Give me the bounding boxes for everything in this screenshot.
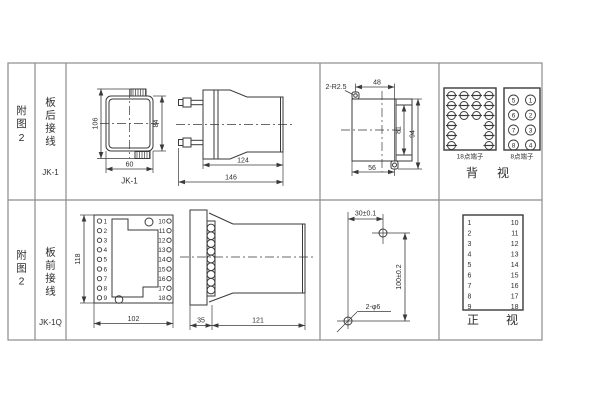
fig-char: 附 <box>16 249 27 262</box>
terminal-hole <box>167 267 171 271</box>
plate-terminal <box>207 247 215 255</box>
wiring-char: 后 <box>45 110 56 122</box>
terminal-number: 8 <box>468 294 472 301</box>
terminal-number: 14 <box>511 262 519 269</box>
terminal-number: 15 <box>511 273 519 280</box>
screw-tip <box>179 140 184 146</box>
terminal-hole <box>97 296 101 300</box>
screw-tip <box>179 100 184 106</box>
dim-118: 118 <box>75 253 82 264</box>
row1-fig-label: 附 图 2 <box>16 104 27 144</box>
front-view-caption-char: 视 <box>506 312 518 327</box>
terminal-number: 17 <box>511 294 519 301</box>
terminal-number: 16 <box>511 283 519 290</box>
terminal-hole <box>97 286 101 290</box>
terminal-hole <box>167 257 171 261</box>
model-label: JK-1Q <box>39 318 62 327</box>
screw-nut <box>183 98 191 107</box>
dim-60: 60 <box>126 162 134 169</box>
plate-terminal-circles <box>207 224 215 294</box>
jk1q-drill-plan: 30±0.1 100±0.2 2-φ6 <box>337 211 410 333</box>
mount-hole-top <box>145 218 153 226</box>
terminal-number: 7 <box>104 276 108 283</box>
terminal8-numbers: 56781234 <box>509 95 536 150</box>
terminal-hole <box>167 228 171 232</box>
terminal-number: 18 <box>158 295 166 302</box>
plate-terminal <box>207 286 215 294</box>
screw-nut <box>183 138 191 147</box>
terminal-hole <box>167 296 171 300</box>
terminal-number: 2 <box>529 112 533 119</box>
terminal-hole <box>97 257 101 261</box>
front-tab-top-hatch <box>131 89 146 96</box>
terminal-hole <box>97 276 101 280</box>
terminal-screw-bottom <box>179 138 204 147</box>
corner-note: 2-R2.5 <box>325 84 346 91</box>
wiring-char: 前 <box>45 259 56 272</box>
terminal-number: 6 <box>468 273 472 280</box>
fig-char: 图 <box>16 118 27 130</box>
wiring-char: 板 <box>45 246 56 259</box>
row2-fig-label: 附 图 2 <box>16 249 27 288</box>
dim-121: 121 <box>252 318 264 325</box>
jk1-back-view: 56781234 18点端子 8点端子 背 视 <box>444 88 540 180</box>
terminal-hole <box>167 238 171 242</box>
terminal-number: 10 <box>158 218 166 225</box>
front-view-numbers-left: 123456789 <box>468 220 472 311</box>
terminal-number: 1 <box>468 220 472 227</box>
front-plate <box>190 210 207 305</box>
plate-terminal <box>207 255 215 263</box>
fig-char: 图 <box>16 263 27 275</box>
terminal-number: 16 <box>158 276 166 283</box>
plate-terminal <box>207 271 215 279</box>
jk1q-side-view: 35 121 <box>180 210 315 330</box>
jk1-front-view: 106 84 60 JK-1 <box>93 89 167 186</box>
terminal-hole <box>97 267 101 271</box>
terminal-number: 11 <box>159 228 166 235</box>
drawing-sheet: 附 图 2 板 后 接 线 JK-1 106 84 60 JK-1 <box>0 0 600 400</box>
terminal-number: 7 <box>468 283 472 290</box>
front-view-caption: JK-1 <box>121 177 138 186</box>
taper-top <box>209 213 233 224</box>
drawing-svg: 附 图 2 板 后 接 线 JK-1 106 84 60 JK-1 <box>0 0 600 400</box>
back-view-caption-char: 视 <box>497 165 509 180</box>
terminal-number: 5 <box>104 257 108 264</box>
terminal18-screws <box>446 92 495 150</box>
terminal-number: 5 <box>512 97 516 104</box>
terminal-number: 1 <box>529 97 533 104</box>
dim-100: 100±0.2 <box>396 264 403 289</box>
back-view-caption-char: 背 <box>466 166 478 180</box>
terminal-hole <box>97 228 101 232</box>
dim-35: 35 <box>197 318 205 325</box>
plate-terminal <box>207 240 215 248</box>
dim-102: 102 <box>128 316 140 323</box>
front-view-caption-char: 正 <box>467 313 479 327</box>
terminal-number: 13 <box>158 247 166 254</box>
taper-bottom <box>209 293 233 302</box>
dim-81: 81 <box>396 126 403 134</box>
terminal-hole <box>167 248 171 252</box>
terminal-number: 17 <box>158 286 166 293</box>
dim-146: 146 <box>225 175 237 182</box>
terminal-screw-top <box>179 98 204 107</box>
terminal-number: 8 <box>104 286 108 293</box>
terminal-number: 2 <box>104 228 108 235</box>
dim-84: 84 <box>153 120 160 128</box>
dim-48: 48 <box>373 80 381 87</box>
terminal-number: 18 <box>511 304 519 311</box>
wiring-char: 线 <box>45 135 56 148</box>
jk1q-panel-view: 123456789 101112131415161718 118 102 <box>75 215 173 328</box>
terminal-number: 9 <box>468 304 472 311</box>
terminal-number: 15 <box>158 266 166 273</box>
terminal-number: 1 <box>104 218 108 225</box>
plate-terminal <box>207 263 215 271</box>
fig-char: 附 <box>16 104 27 117</box>
terminal-number: 7 <box>512 127 516 134</box>
fig-char: 2 <box>19 132 25 144</box>
dim-106: 106 <box>93 118 100 130</box>
plate-terminal <box>207 224 215 232</box>
terminal-number: 12 <box>158 238 166 245</box>
terminal-number: 3 <box>529 127 533 134</box>
front-view-numbers-right: 101112131415161718 <box>511 220 519 311</box>
terminal-number: 4 <box>529 142 533 149</box>
terminal-number: 2 <box>468 231 472 238</box>
wiring-char: 板 <box>45 96 56 109</box>
terminal-hole <box>97 248 101 252</box>
terminal-hole <box>97 238 101 242</box>
terminal-number: 6 <box>512 112 516 119</box>
terminal-number: 3 <box>468 241 472 248</box>
terminal-number: 12 <box>511 241 519 248</box>
relay-body <box>233 224 305 293</box>
terminal-number: 4 <box>104 247 108 254</box>
wiring-char: 接 <box>45 122 56 135</box>
plate-terminal <box>207 232 215 240</box>
terminal-number: 6 <box>104 266 108 273</box>
terminal-hole <box>97 219 101 223</box>
row1-wiring-label: 板 后 接 线 JK-1 <box>42 96 59 178</box>
terminal-number: 9 <box>104 295 108 302</box>
terminal-hole <box>167 219 171 223</box>
dim-56: 56 <box>368 165 376 172</box>
terminal-number: 10 <box>511 220 519 227</box>
jk1-panel-cutout: 48 2-R2.5 81 94 56 <box>325 80 422 177</box>
terminal-number: 4 <box>468 252 472 259</box>
panel-terminals-left: 123456789 <box>97 218 107 302</box>
dim-94: 94 <box>410 130 417 138</box>
dim-30: 30±0.1 <box>355 211 376 218</box>
wiring-char: 接 <box>45 272 56 285</box>
jk1q-front-view: 123456789 101112131415161718 正 视 <box>463 215 523 327</box>
wiring-char: 线 <box>45 285 56 298</box>
relay-body-outline <box>112 219 158 297</box>
plate-terminal <box>207 278 215 286</box>
jk1-side-view: 124 146 <box>176 90 295 186</box>
terminal-number: 3 <box>104 238 108 245</box>
terminal-number: 14 <box>158 257 166 264</box>
fig-char: 2 <box>19 276 25 288</box>
panel-terminals-right: 101112131415161718 <box>158 218 171 302</box>
terminal-hole <box>167 286 171 290</box>
terminal-number: 8 <box>512 142 516 149</box>
mount-stub-top <box>352 92 359 99</box>
terminal-number: 11 <box>511 231 518 238</box>
model-label: JK-1 <box>42 168 59 177</box>
leader-diagonal <box>337 312 357 332</box>
terminal-number: 13 <box>511 252 519 259</box>
terminal-hole <box>167 276 171 280</box>
leader-line <box>345 91 353 95</box>
dim-124: 124 <box>237 158 249 165</box>
front-tab-bottom-hatch <box>135 152 150 159</box>
row2-wiring-label: 板 前 接 线 JK-1Q <box>39 246 62 328</box>
hole-note: 2-φ6 <box>366 304 381 311</box>
terminal-number: 5 <box>468 262 472 269</box>
terminal8-label: 8点端子 <box>510 152 534 161</box>
terminal18-label: 18点端子 <box>457 152 484 161</box>
